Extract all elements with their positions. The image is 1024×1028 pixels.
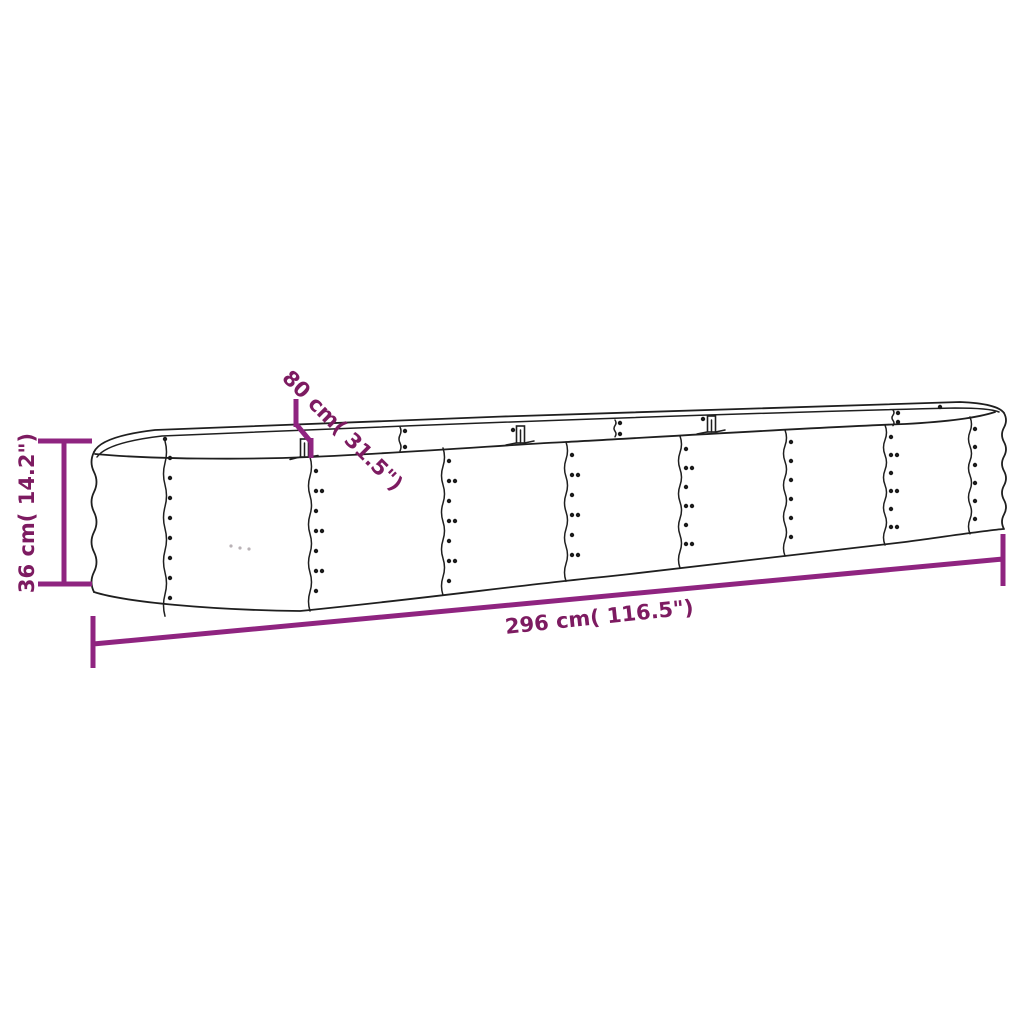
corrugated-right-edge [1002,413,1006,529]
bracket [506,426,534,445]
surface-speckles [229,544,250,550]
rim-band-seam [399,427,401,451]
panel-seam [442,448,445,595]
front-rim-edge [95,412,995,459]
corrugated-left-edge [92,452,97,592]
rim-band-seam [614,420,616,437]
rim-band-seam [892,410,894,426]
height-dimension-label: 36 cm( 14.2") [15,433,39,593]
panel-seam [784,430,787,556]
panel-seam [309,457,312,611]
dimension-height: 36 cm( 14.2") [15,433,92,593]
bracket [290,439,318,460]
panel-seam [565,442,568,581]
panel-seam [884,425,887,545]
height-dimension-line [38,441,92,584]
dimension-length: 296 cm( 116.5") [93,534,1003,668]
panel-seams [164,417,972,616]
planter-drawing [92,402,1007,616]
panel-seam [679,436,682,568]
raised-bed-dimension-diagram: 36 cm( 14.2") 80 cm( 31.5") 296 cm( 116.… [0,0,1024,1024]
panel-seam [164,441,167,616]
panel-seam [969,417,972,534]
dimension-diagram-page: 36 cm( 14.2") 80 cm( 31.5") 296 cm( 116.… [0,0,1024,1024]
length-dimension-line [93,534,1003,668]
back-rim-details [163,405,942,460]
